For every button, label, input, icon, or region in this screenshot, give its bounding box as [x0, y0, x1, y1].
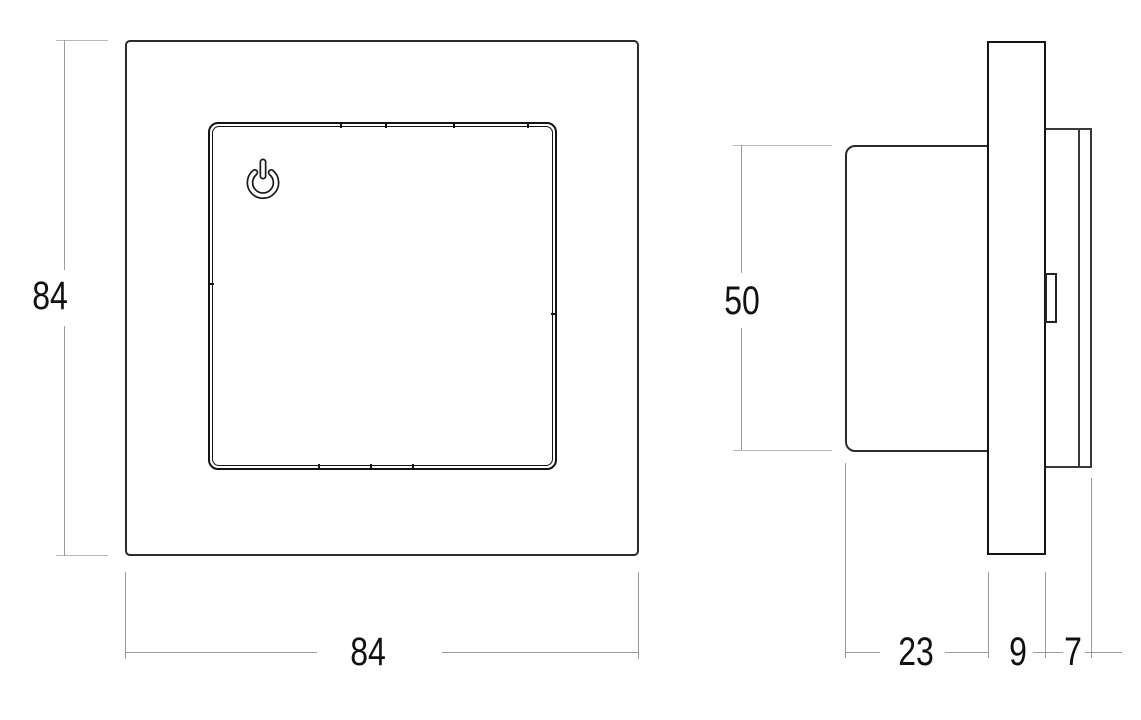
dim-84v-line-upper [64, 40, 65, 270]
dim-label-23: 23 [892, 632, 940, 672]
bezel-tick [208, 283, 214, 285]
dim-9-ext-left [988, 572, 989, 658]
dim-84h-line-left [125, 652, 317, 653]
dim-50-line-upper [741, 145, 742, 273]
dim-label-9: 9 [1002, 632, 1034, 672]
dim-label-7: 7 [1057, 632, 1089, 672]
side-view-body [845, 145, 989, 452]
bezel-tick [370, 464, 372, 470]
side-view-rear-module-line [1078, 129, 1080, 467]
dim-label-84-vertical: 84 [26, 276, 74, 316]
bezel-tick [453, 122, 455, 128]
side-view-clip [1045, 273, 1057, 323]
dim-7-ext-left [1045, 572, 1046, 658]
bezel-tick [527, 122, 529, 128]
dim-84h-ext-left [125, 572, 126, 659]
dimension-drawing: 84 84 50 23 9 7 [0, 0, 1141, 720]
dim-7-ext-right [1091, 478, 1092, 658]
dim-84h-ext-right [638, 572, 639, 659]
dim-50-line-lower [741, 328, 742, 450]
dim-23-ext-left [845, 463, 846, 658]
dim-84h-line-right [442, 652, 638, 653]
dim-depth-line-seg2 [945, 652, 988, 653]
side-view-front-plate [987, 41, 1046, 555]
dim-depth-line-seg4 [1085, 652, 1122, 653]
dim-depth-line-seg1 [845, 652, 880, 653]
bezel-tick [551, 313, 557, 315]
dim-50-tick-bottom [733, 450, 832, 451]
bezel-tick [340, 122, 342, 128]
power-icon [241, 155, 285, 201]
bezel-tick [412, 464, 414, 470]
bezel-tick [385, 122, 387, 128]
dim-label-50: 50 [718, 281, 766, 321]
dim-50-tick-top [733, 145, 832, 146]
bezel-tick [318, 464, 320, 470]
dim-label-84-horizontal: 84 [344, 632, 392, 672]
dim-84v-line-lower [64, 326, 65, 556]
